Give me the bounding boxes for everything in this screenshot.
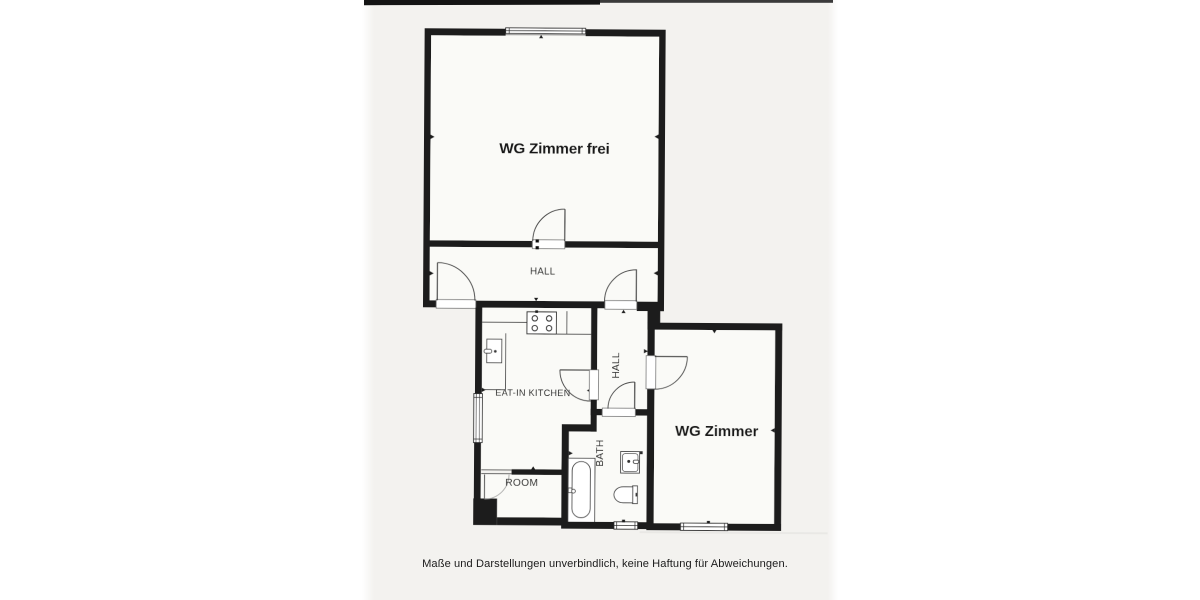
svg-text:HALL: HALL [530, 266, 556, 277]
svg-text:BATH: BATH [595, 440, 606, 467]
svg-text:HALL: HALL [611, 352, 622, 378]
svg-text:ROOM: ROOM [505, 478, 538, 489]
svg-text:Maße und Darstellungen unverbi: Maße und Darstellungen unverbindlich, ke… [422, 558, 788, 570]
svg-text:EAT-IN KITCHEN: EAT-IN KITCHEN [495, 388, 570, 398]
svg-text:WG Zimmer frei: WG Zimmer frei [499, 140, 609, 158]
svg-text:WG Zimmer: WG Zimmer [675, 423, 759, 441]
